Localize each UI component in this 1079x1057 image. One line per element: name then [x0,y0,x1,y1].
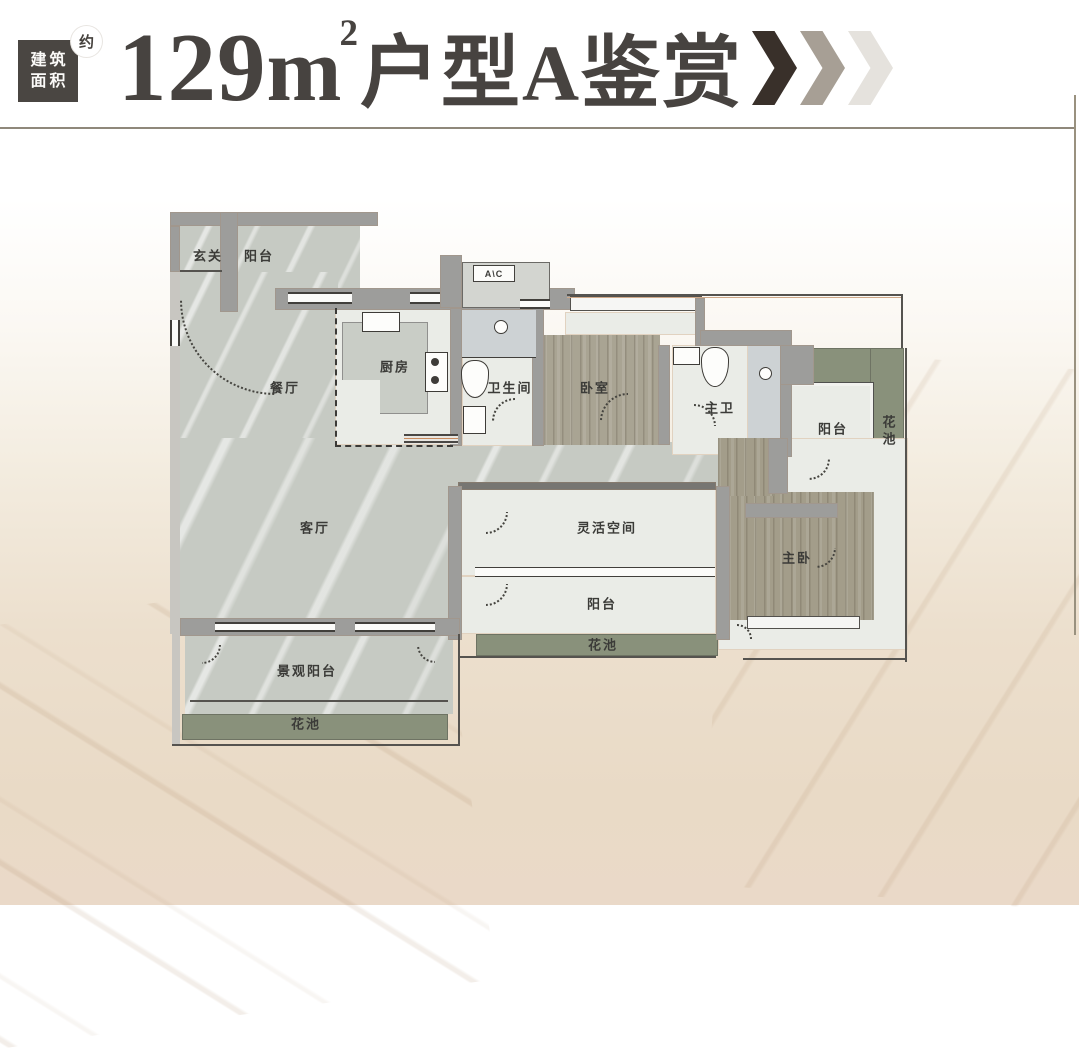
wall [780,345,814,385]
chevron-icon [800,31,845,105]
wall [448,486,462,640]
room-label-master-bath: 主卫 [705,398,735,417]
bathroom-sink [463,406,486,434]
burner-icon [431,376,439,384]
wall [700,330,792,346]
shower-head-icon [759,367,772,380]
room-label-flex-space: 灵活空间 [577,518,637,537]
room-label-flower-right: 花池 [879,415,898,449]
badge-line2: 面积 [27,73,68,91]
room-label-bedroom: 卧室 [580,378,610,397]
burner-icon [431,358,439,366]
window [170,320,180,346]
edge-line [458,634,460,744]
floor-plan: A\C 玄关 阳台 餐厅 厨房 卫生间 卧室 主卫 阳台 花池 客厅 灵活空间 [170,210,910,750]
window [520,299,550,309]
kitchen-counter-notch [342,380,380,414]
wall [716,486,730,640]
vanity [673,347,700,365]
room-label-dining: 餐厅 [270,378,300,397]
edge-line [190,700,448,702]
chevron-icon [752,31,797,105]
window [215,622,335,632]
wall [768,438,788,494]
room-label-master-bedroom: 主卧 [782,548,812,567]
window [288,292,352,304]
window-sill [475,567,715,577]
room-label-bathroom: 卫生间 [487,378,532,397]
area-number: 129 [118,12,267,123]
edge-line [743,658,906,660]
window [355,622,435,632]
window [570,296,702,311]
room-label-flower-left: 花池 [291,714,321,733]
kitchen-sink [362,312,400,332]
room-label-kitchen: 厨房 [380,357,410,376]
area-unit: m [267,19,342,122]
edge-line [180,270,222,272]
edge-line [901,294,903,348]
edge-line [172,744,460,746]
vent-grille [404,434,458,444]
title-text: 户型A鉴赏 [360,8,743,123]
wall [658,345,670,445]
area-badge: 建筑 面积 [18,40,78,102]
room-label-living: 客厅 [300,518,330,537]
room-label-balcony-mid: 阳台 [587,594,617,613]
badge-line1: 建筑 [27,52,68,70]
right-edge-rule [1074,95,1076,635]
wall [170,226,180,272]
page-title: 129m2户型A鉴赏 [118,8,743,110]
edge-line [905,348,907,662]
ac-label: A\C [473,265,515,282]
wall [170,226,180,634]
title-chevrons [752,31,893,105]
header-rule [0,127,1076,129]
wall [440,255,462,308]
wall [745,503,838,518]
room-label-balcony-top: 阳台 [244,246,274,265]
wall [170,212,378,226]
window [747,616,860,629]
wall [458,482,716,490]
approx-circle-badge: 约 [71,26,102,57]
edge-line [460,656,716,658]
wall [172,634,180,746]
edge-line [567,294,903,296]
shower-area [462,310,536,358]
floor-bedroom-strip [565,312,701,335]
room-label-balcony-right: 阳台 [818,419,848,438]
area-superscript: 2 [339,12,358,55]
room-label-view-balcony: 景观阳台 [277,661,337,680]
shower-head-icon [494,320,508,334]
room-label-flower-mid: 花池 [588,635,618,654]
room-label-entry: 玄关 [193,246,223,265]
chevron-icon [848,31,893,105]
edge-line [567,297,903,298]
